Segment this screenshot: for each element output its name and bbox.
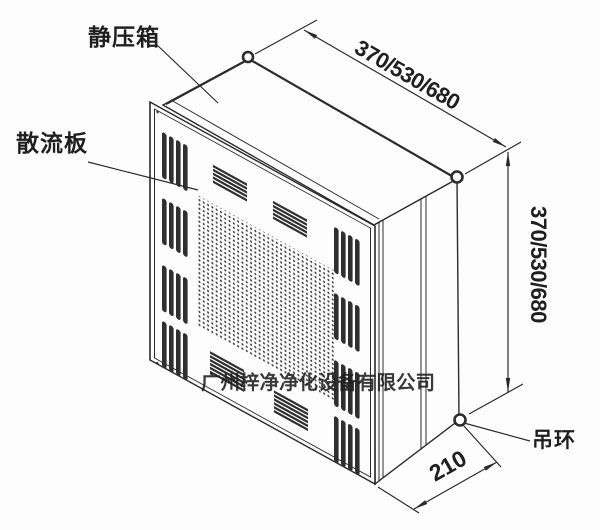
- dim-label-top-width: 370/530/680: [351, 35, 465, 115]
- watermark-text: 广州梓净净化设备有限公司: [201, 371, 435, 394]
- extension-line: [469, 384, 523, 414]
- plenum-right-face: [374, 179, 459, 484]
- technical-drawing-page: 370/530/680 370/530/680 210 静压箱 散流板 吊环 广…: [0, 0, 600, 530]
- lifting-ring-icon-top-left: [243, 52, 253, 62]
- label-static-pressure-box: 静压箱: [88, 24, 160, 50]
- label-lifting-ring: 吊环: [532, 429, 576, 452]
- lifting-ring-icon-top-right: [452, 172, 463, 183]
- arrow-icon: [506, 152, 510, 166]
- arrow-icon: [506, 378, 510, 392]
- arrow-icon: [484, 462, 497, 471]
- arrow-icon: [493, 138, 506, 147]
- lifting-ring-icon-bottom-right: [455, 415, 466, 426]
- dim-label-side-height: 370/530/680: [526, 206, 551, 323]
- leader-lifting-ring: [464, 423, 530, 441]
- extension-line: [378, 487, 419, 513]
- extension-line: [465, 142, 521, 174]
- label-diffuser-plate: 散流板: [16, 130, 88, 156]
- dimension-side-height: 370/530/680: [469, 152, 551, 414]
- arrow-icon: [414, 500, 427, 509]
- arrow-icon: [304, 30, 317, 39]
- extension-line: [255, 20, 317, 54]
- hepa-box-isometric-drawing: 370/530/680 370/530/680 210 静压箱 散流板 吊环 广…: [0, 0, 600, 530]
